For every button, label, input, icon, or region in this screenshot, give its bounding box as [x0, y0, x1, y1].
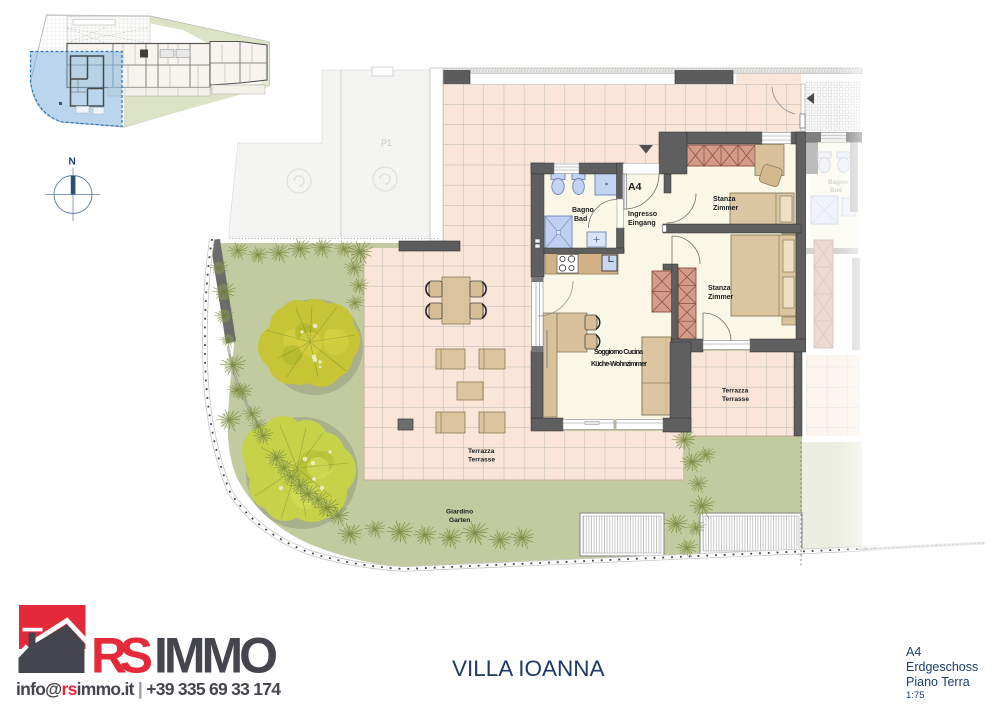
svg-text:A4: A4	[906, 645, 921, 659]
svg-text:Ingresso: Ingresso	[628, 211, 657, 218]
svg-text:Terrazza: Terrazza	[722, 388, 749, 395]
svg-text:RS: RS	[91, 628, 153, 684]
svg-text:Stanza: Stanza	[713, 196, 736, 203]
svg-text:Küche-Wohnzimmer: Küche-Wohnzimmer	[591, 361, 647, 368]
svg-text:Soggiorno Cucina: Soggiorno Cucina	[594, 349, 643, 356]
svg-text:IMMO: IMMO	[154, 628, 278, 684]
svg-text:Terrasse: Terrasse	[722, 396, 749, 403]
svg-text:N: N	[69, 157, 76, 168]
svg-text:Terrasse: Terrasse	[468, 457, 495, 464]
svg-text:info@rsimmo.it | +39 335 69 33: info@rsimmo.it | +39 335 69 33 174	[16, 679, 281, 699]
svg-text:VILLA IOANNA: VILLA IOANNA	[452, 656, 605, 681]
svg-text:Terrazza: Terrazza	[468, 448, 495, 455]
svg-text:Eingang: Eingang	[628, 220, 656, 227]
svg-text:P1: P1	[381, 138, 392, 148]
svg-text:Zimmer: Zimmer	[713, 205, 739, 212]
svg-text:Giardino: Giardino	[446, 509, 473, 516]
svg-text:Stanza: Stanza	[708, 285, 731, 292]
svg-text:Bagno: Bagno	[572, 207, 594, 214]
svg-text:Zimmer: Zimmer	[708, 294, 734, 301]
svg-text:Piano Terra: Piano Terra	[906, 675, 970, 689]
svg-text:1:75: 1:75	[906, 690, 925, 701]
svg-text:Bad: Bad	[574, 216, 587, 223]
svg-text:Garten: Garten	[449, 517, 470, 524]
svg-text:A4: A4	[628, 181, 642, 193]
svg-text:Erdgeschoss: Erdgeschoss	[906, 660, 978, 674]
